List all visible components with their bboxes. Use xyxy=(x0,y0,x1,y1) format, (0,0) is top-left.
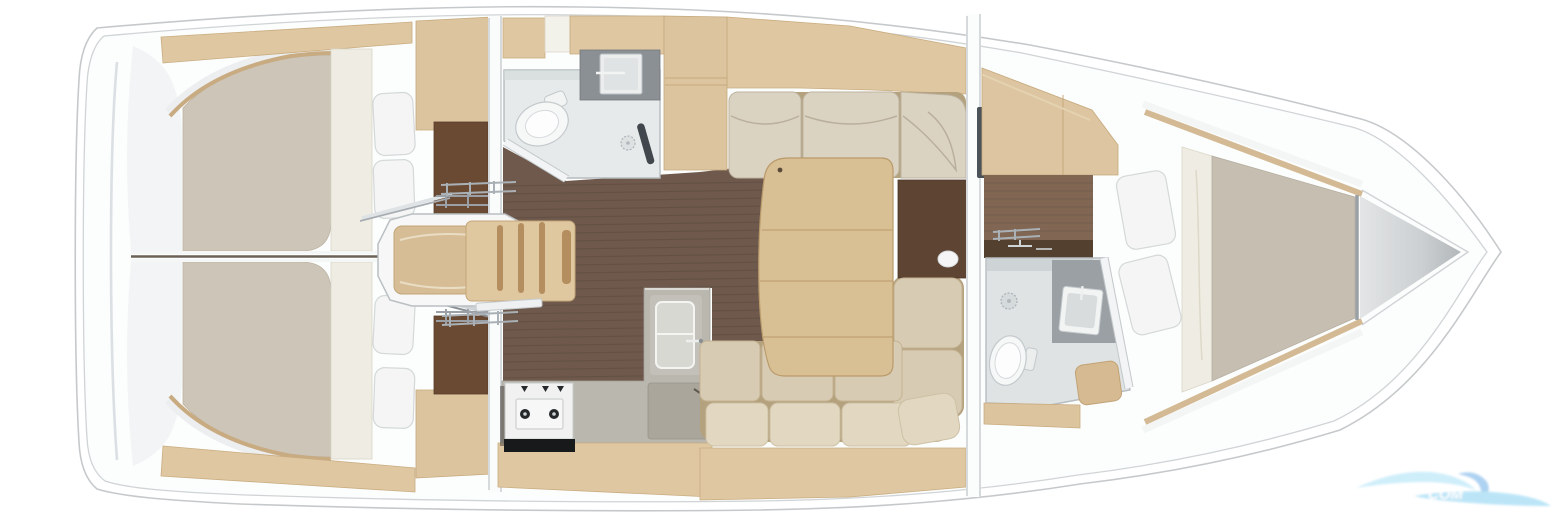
svg-text:COM: COM xyxy=(1428,486,1464,503)
